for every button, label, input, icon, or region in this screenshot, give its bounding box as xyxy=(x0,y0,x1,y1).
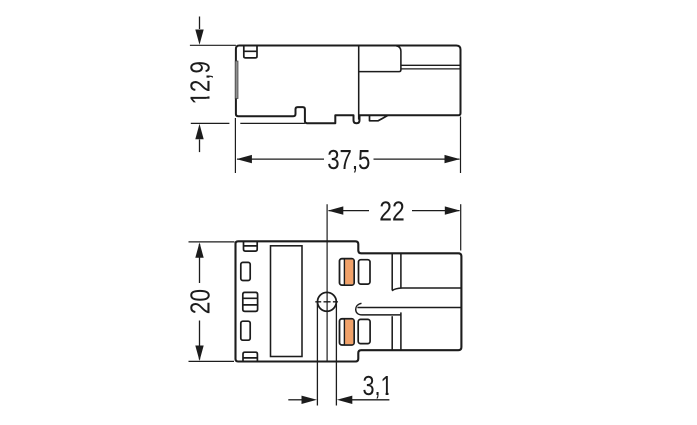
svg-text:37,5: 37,5 xyxy=(327,144,370,175)
svg-text:12,9: 12,9 xyxy=(184,61,215,105)
svg-text:3,1: 3,1 xyxy=(363,370,393,401)
svg-text:20: 20 xyxy=(184,289,215,314)
svg-text:22: 22 xyxy=(379,195,404,226)
